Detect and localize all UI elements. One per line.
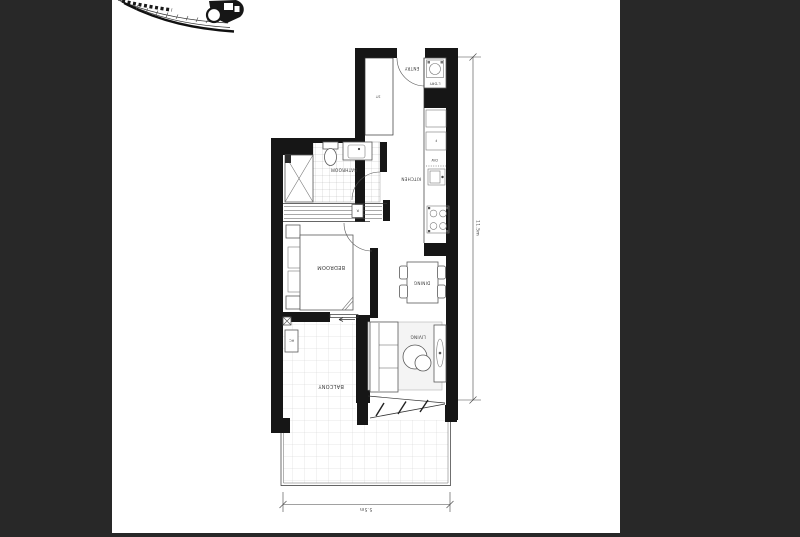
floor-plan: ENTRY L'DRY ST F DW bbox=[112, 0, 620, 533]
sink-icon bbox=[428, 169, 445, 185]
kitchen-label: KITCHEN bbox=[401, 177, 421, 182]
dining-chair bbox=[400, 285, 408, 298]
storage-closet: ST bbox=[365, 58, 393, 135]
tv-unit-icon bbox=[434, 325, 446, 382]
dining-label: DINING bbox=[414, 281, 431, 286]
entry-label: ENTRY bbox=[404, 66, 419, 71]
entry-door-arc bbox=[397, 58, 425, 86]
vanity-icon bbox=[343, 142, 372, 160]
laundry-label: L'DRY bbox=[429, 82, 441, 86]
bedroom: BEDROOM bbox=[286, 223, 372, 322]
dishwasher-label: DW bbox=[431, 158, 438, 162]
robe-label: R bbox=[356, 209, 359, 213]
living-label: LIVING bbox=[410, 335, 426, 340]
toilet-icon bbox=[323, 142, 338, 166]
bathroom-label: BATHROOM bbox=[331, 168, 357, 173]
screenshot-root: { "colors": { "canvas_bg": "#282828", "p… bbox=[0, 0, 800, 533]
sofa-icon bbox=[370, 322, 398, 392]
dimension-vertical-label: 11.5m bbox=[475, 220, 481, 236]
coffee-table bbox=[415, 355, 431, 371]
balcony-sliding-doors bbox=[368, 396, 445, 418]
dining: DINING bbox=[400, 262, 446, 303]
wardrobe: R bbox=[283, 204, 387, 222]
ac-label: AC bbox=[289, 339, 295, 343]
dining-chair bbox=[438, 285, 446, 298]
dining-chair bbox=[400, 266, 408, 279]
entry-area: ENTRY L'DRY bbox=[397, 58, 446, 88]
document-page: ENTRY L'DRY ST F DW bbox=[112, 0, 620, 533]
drain-box-icon bbox=[283, 317, 291, 325]
bedside-table bbox=[286, 296, 300, 309]
storage-label: ST bbox=[375, 95, 380, 99]
bedside-table bbox=[286, 225, 300, 238]
site-plan-fragment bbox=[118, 0, 244, 32]
living: LIVING bbox=[368, 322, 446, 418]
balcony-label: BALCONY bbox=[318, 383, 344, 389]
bedroom-label: BEDROOM bbox=[317, 264, 345, 270]
bedroom-balcony-slider bbox=[330, 315, 358, 322]
dining-chair bbox=[438, 266, 446, 279]
dimension-horizontal-label: 5.5m bbox=[359, 506, 372, 512]
shower-icon bbox=[285, 155, 313, 202]
cooktop-icon bbox=[427, 206, 449, 233]
fridge-label: F bbox=[435, 139, 437, 143]
dimension-vertical: 11.5m bbox=[458, 54, 481, 404]
kitchen-cupboard bbox=[426, 110, 446, 127]
dimension-horizontal: 5.5m bbox=[280, 492, 454, 512]
